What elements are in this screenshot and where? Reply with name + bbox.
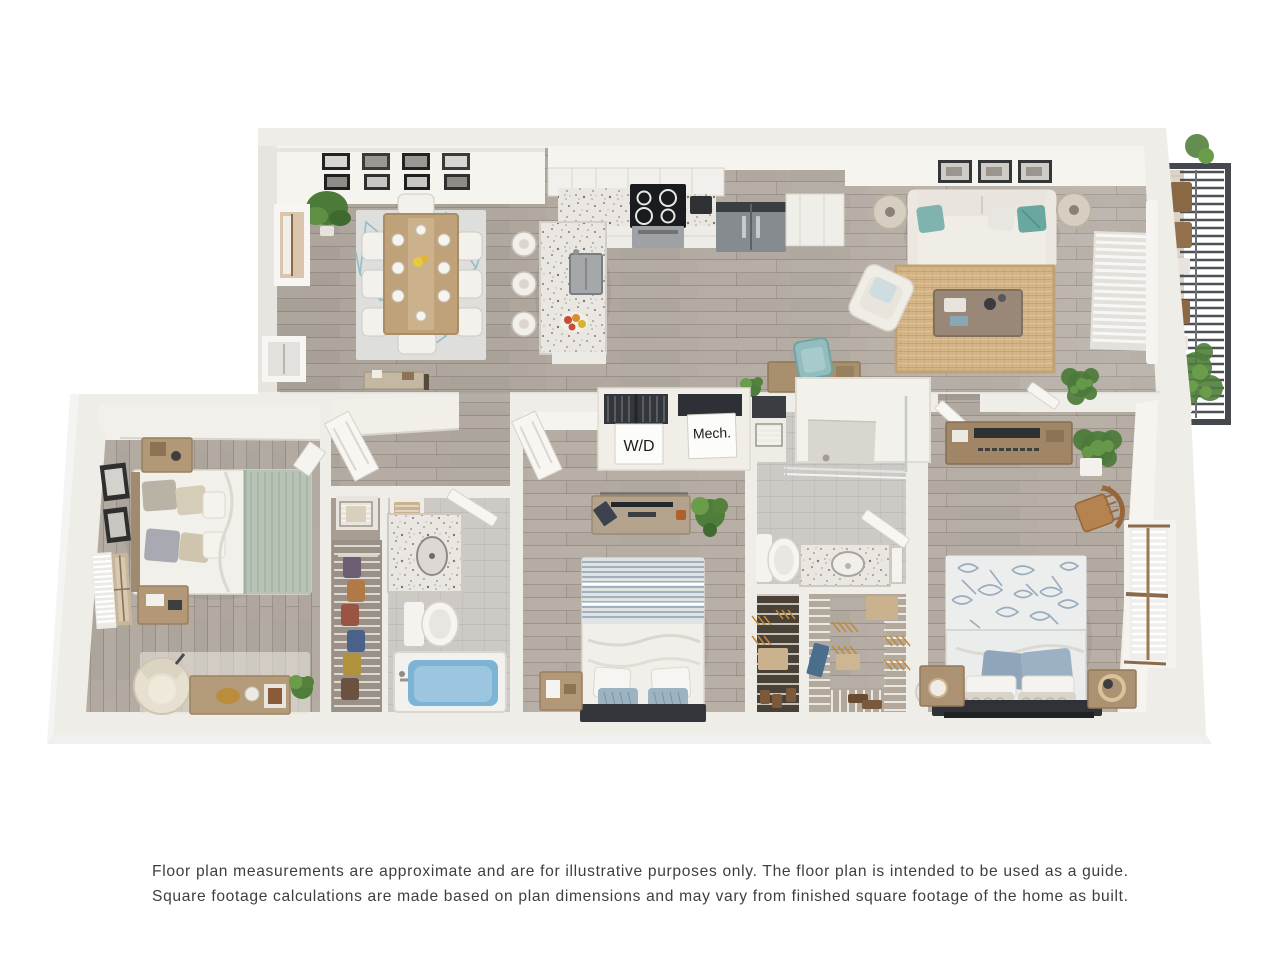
svg-text:Floor plan measurements are ap: Floor plan measurements are approximate … (152, 863, 1128, 880)
svg-text:W/D: W/D (623, 438, 654, 455)
svg-text:Mech.: Mech. (693, 424, 732, 441)
svg-text:Square footage calculations ar: Square footage calculations are made bas… (152, 888, 1128, 905)
